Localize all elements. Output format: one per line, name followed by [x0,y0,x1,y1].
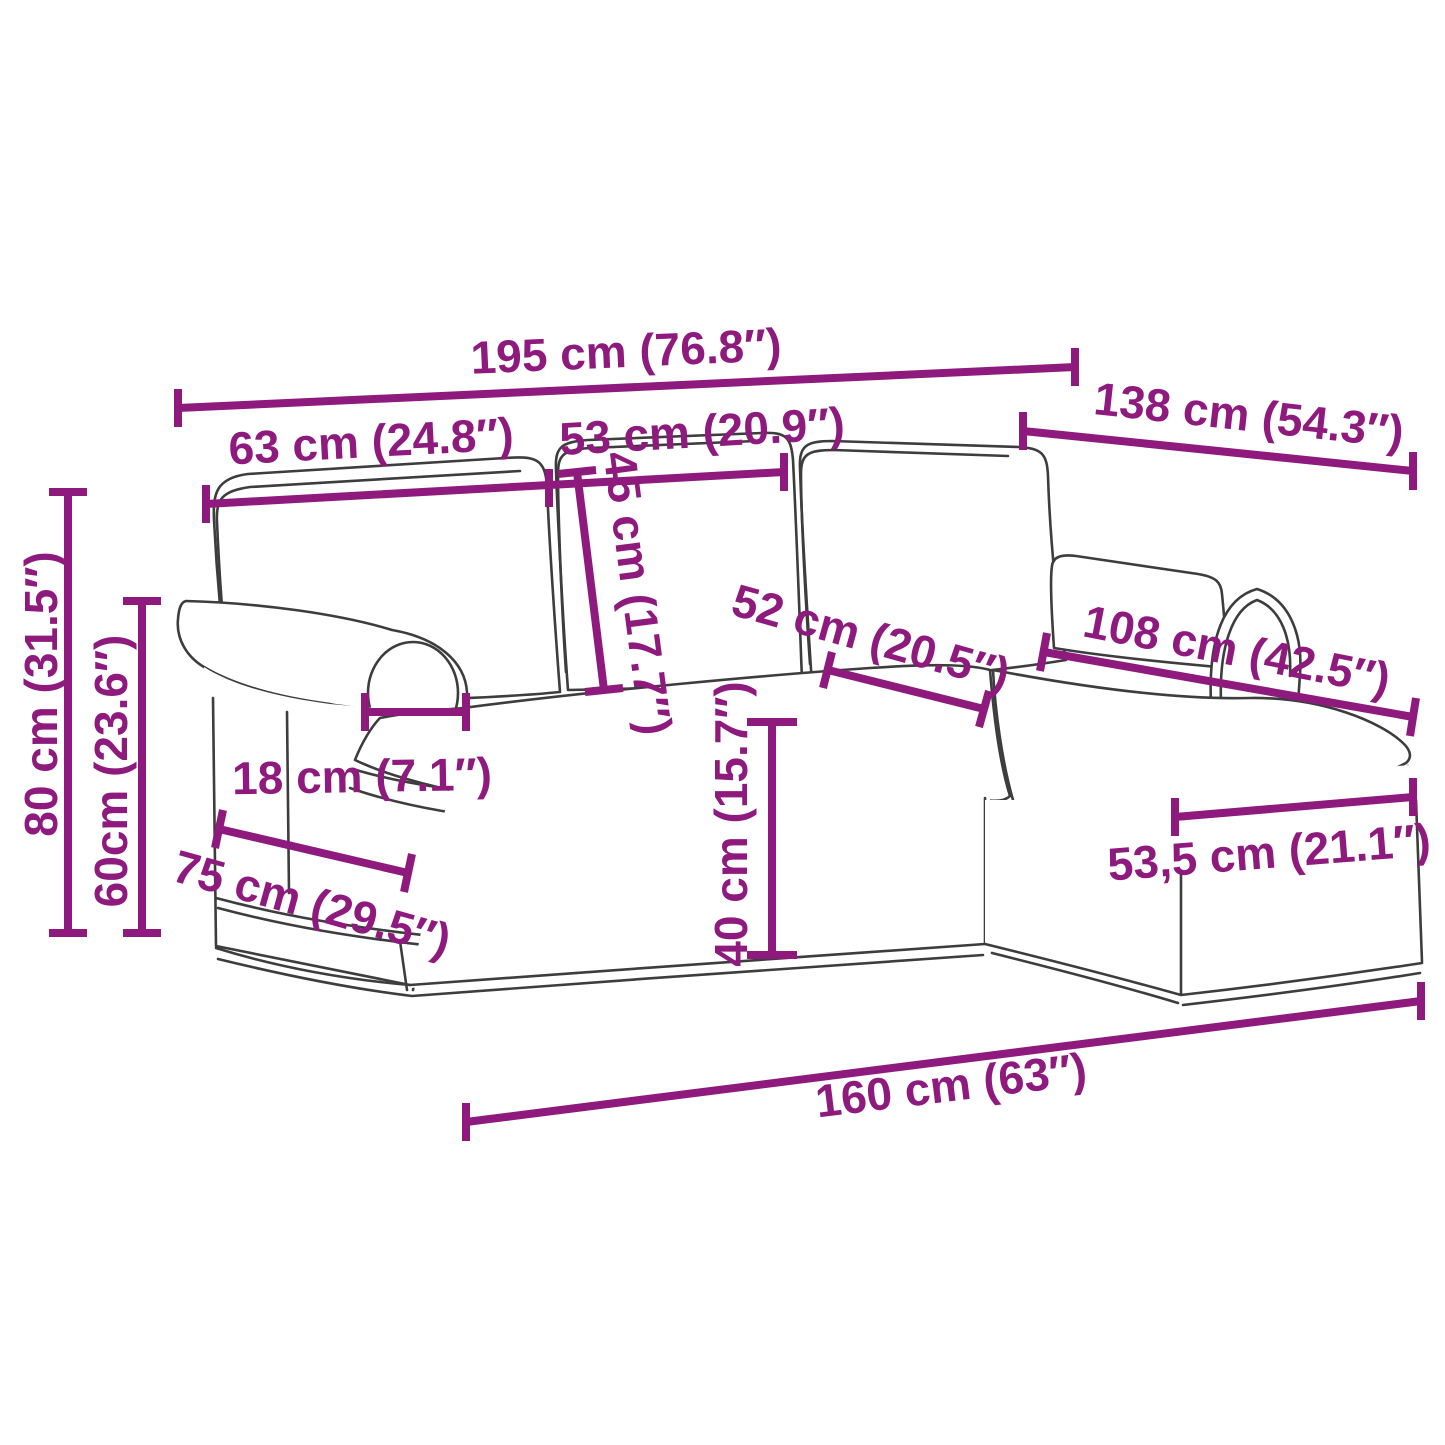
dim-label-armrest-height: 60cm (23.6″) [84,635,138,908]
dim-label-armrest-width: 18 cm (7.1″) [232,747,493,806]
dim-label-overall-height: 80 cm (31.5″) [14,551,68,836]
dim-label-seat-height: 40 cm (15.7″) [704,681,758,966]
diagram-canvas: 195 cm (76.8″) 63 cm (24.8″) 53 cm (20.9… [0,0,1445,1445]
front-base [410,755,990,988]
